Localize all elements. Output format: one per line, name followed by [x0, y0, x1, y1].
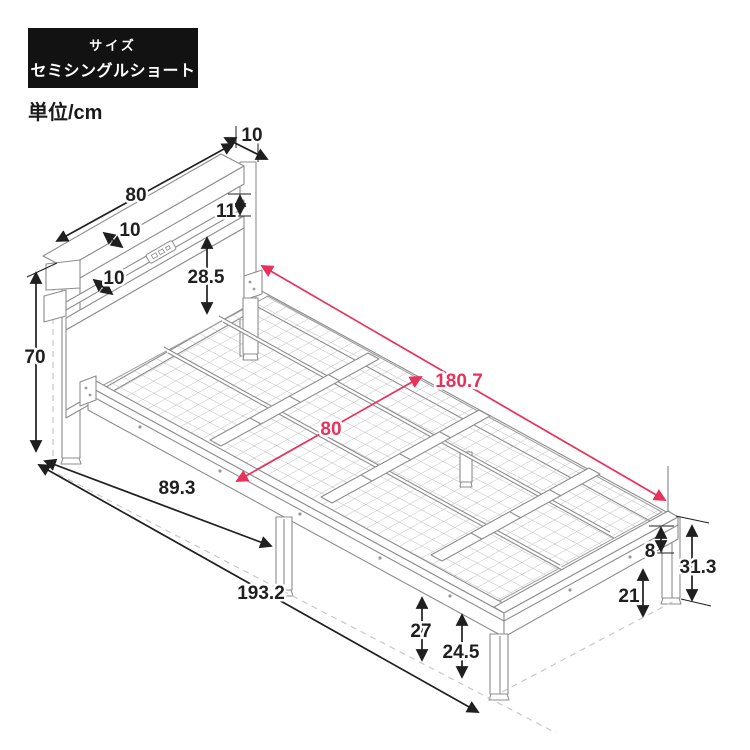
- foot-near-leg: [490, 634, 508, 694]
- size-badge-value: セミシングルショート: [30, 57, 195, 81]
- mid-shelf-bracket: [44, 290, 66, 322]
- unit-label: 単位/cm: [28, 96, 102, 125]
- dim-label-headboard-height: 70: [24, 347, 45, 368]
- dim-label-floor-to-frame-bottom: 24.5: [443, 642, 480, 663]
- dim-label-top-depth: 10: [241, 125, 262, 146]
- bed-dimension-diagram: 10 80 10 11 10 28.5: [0, 0, 750, 750]
- dim-label-lower-shelf-depth: 10: [103, 268, 124, 289]
- near-post-foot: [61, 458, 81, 464]
- dim-label-inner-length: 180.7: [435, 371, 483, 392]
- dim-label-mid-shelf-depth: 10: [119, 220, 140, 241]
- dim-headboard-top-depth: 10: [225, 125, 267, 162]
- dim-label-headboard-width: 80: [125, 185, 146, 206]
- dim-label-inner-width: 80: [320, 419, 341, 440]
- dim-label-slot-height: 11: [216, 201, 237, 222]
- dim-floor-to-rail: 27: [410, 598, 431, 660]
- dim-floor-to-frame-top: 31.3: [676, 516, 716, 606]
- top-board-near-end: [46, 260, 80, 290]
- dim-label-floor-to-rail: 27: [410, 621, 431, 642]
- dim-label-under-bed-length: 89.3: [159, 478, 196, 499]
- dim-label-panel-height: 28.5: [188, 267, 225, 288]
- dim-label-under-clearance: 21: [618, 586, 640, 607]
- dim-label-frame-height: 8: [645, 541, 656, 562]
- size-badge: サイズ セミシングルショート: [28, 28, 198, 88]
- dim-label-total-length: 193.2: [237, 583, 285, 604]
- far-post-lower: [243, 298, 258, 354]
- product-dimension-screenshot: 10 80 10 11 10 28.5: [0, 0, 750, 750]
- dim-floor-to-frame-bottom: 24.5: [443, 615, 480, 677]
- dim-label-floor-to-frame-top: 31.3: [680, 557, 717, 578]
- dim-headboard-height: 70: [24, 263, 57, 451]
- dim-under-clearance: 21: [618, 570, 643, 616]
- size-badge-caption: サイズ: [89, 35, 137, 54]
